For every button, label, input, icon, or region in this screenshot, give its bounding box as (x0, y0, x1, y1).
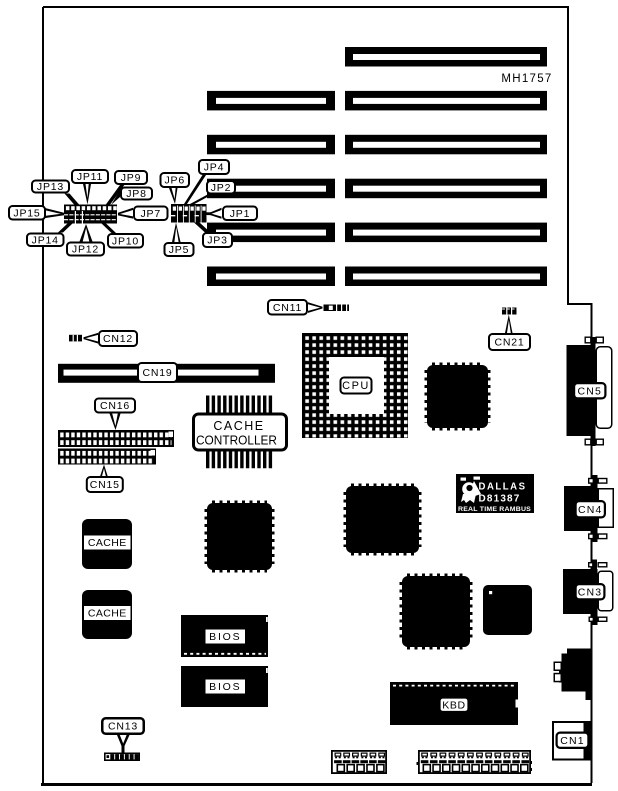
svg-text:CACHE: CACHE (213, 419, 264, 433)
svg-text:BIOS: BIOS (209, 631, 241, 643)
svg-text:CN21: CN21 (494, 337, 524, 349)
svg-text:MH1757: MH1757 (501, 73, 552, 85)
svg-text:REAL TIME RAMBUS: REAL TIME RAMBUS (458, 506, 532, 513)
svg-text:JP10: JP10 (112, 235, 139, 247)
svg-text:DALLAS: DALLAS (479, 482, 527, 493)
svg-text:CPU: CPU (342, 380, 370, 392)
svg-text:CN5: CN5 (577, 385, 602, 397)
svg-text:CN1: CN1 (560, 735, 585, 747)
svg-text:BIOS: BIOS (209, 681, 241, 693)
svg-text:JP13: JP13 (37, 181, 64, 193)
svg-text:JP15: JP15 (13, 207, 40, 219)
svg-text:CN15: CN15 (90, 479, 120, 491)
svg-text:CN16: CN16 (100, 400, 130, 412)
svg-text:JP14: JP14 (32, 234, 59, 246)
svg-text:CN13: CN13 (108, 721, 138, 733)
svg-text:CN11: CN11 (273, 302, 302, 314)
svg-text:JP11: JP11 (77, 171, 103, 183)
svg-text:CN4: CN4 (578, 504, 603, 516)
svg-text:JP8: JP8 (126, 188, 147, 200)
svg-text:CN19: CN19 (142, 367, 172, 379)
svg-text:CACHE: CACHE (88, 607, 127, 619)
svg-text:JP4: JP4 (204, 162, 225, 174)
svg-text:CN12: CN12 (103, 333, 133, 345)
svg-text:JP3: JP3 (207, 235, 228, 247)
svg-text:JP9: JP9 (121, 172, 142, 184)
svg-text:CACHE: CACHE (88, 537, 127, 549)
svg-text:JP5: JP5 (169, 244, 190, 256)
svg-text:JP12: JP12 (72, 244, 99, 256)
svg-text:KBD: KBD (442, 699, 465, 711)
svg-text:JP7: JP7 (141, 208, 162, 220)
svg-text:JP6: JP6 (165, 175, 186, 187)
svg-text:CONTROLLER: CONTROLLER (196, 434, 277, 448)
svg-text:CN3: CN3 (578, 586, 603, 598)
svg-text:JP1: JP1 (230, 208, 251, 220)
svg-text:D81387: D81387 (479, 493, 521, 504)
svg-text:JP2: JP2 (211, 182, 232, 194)
